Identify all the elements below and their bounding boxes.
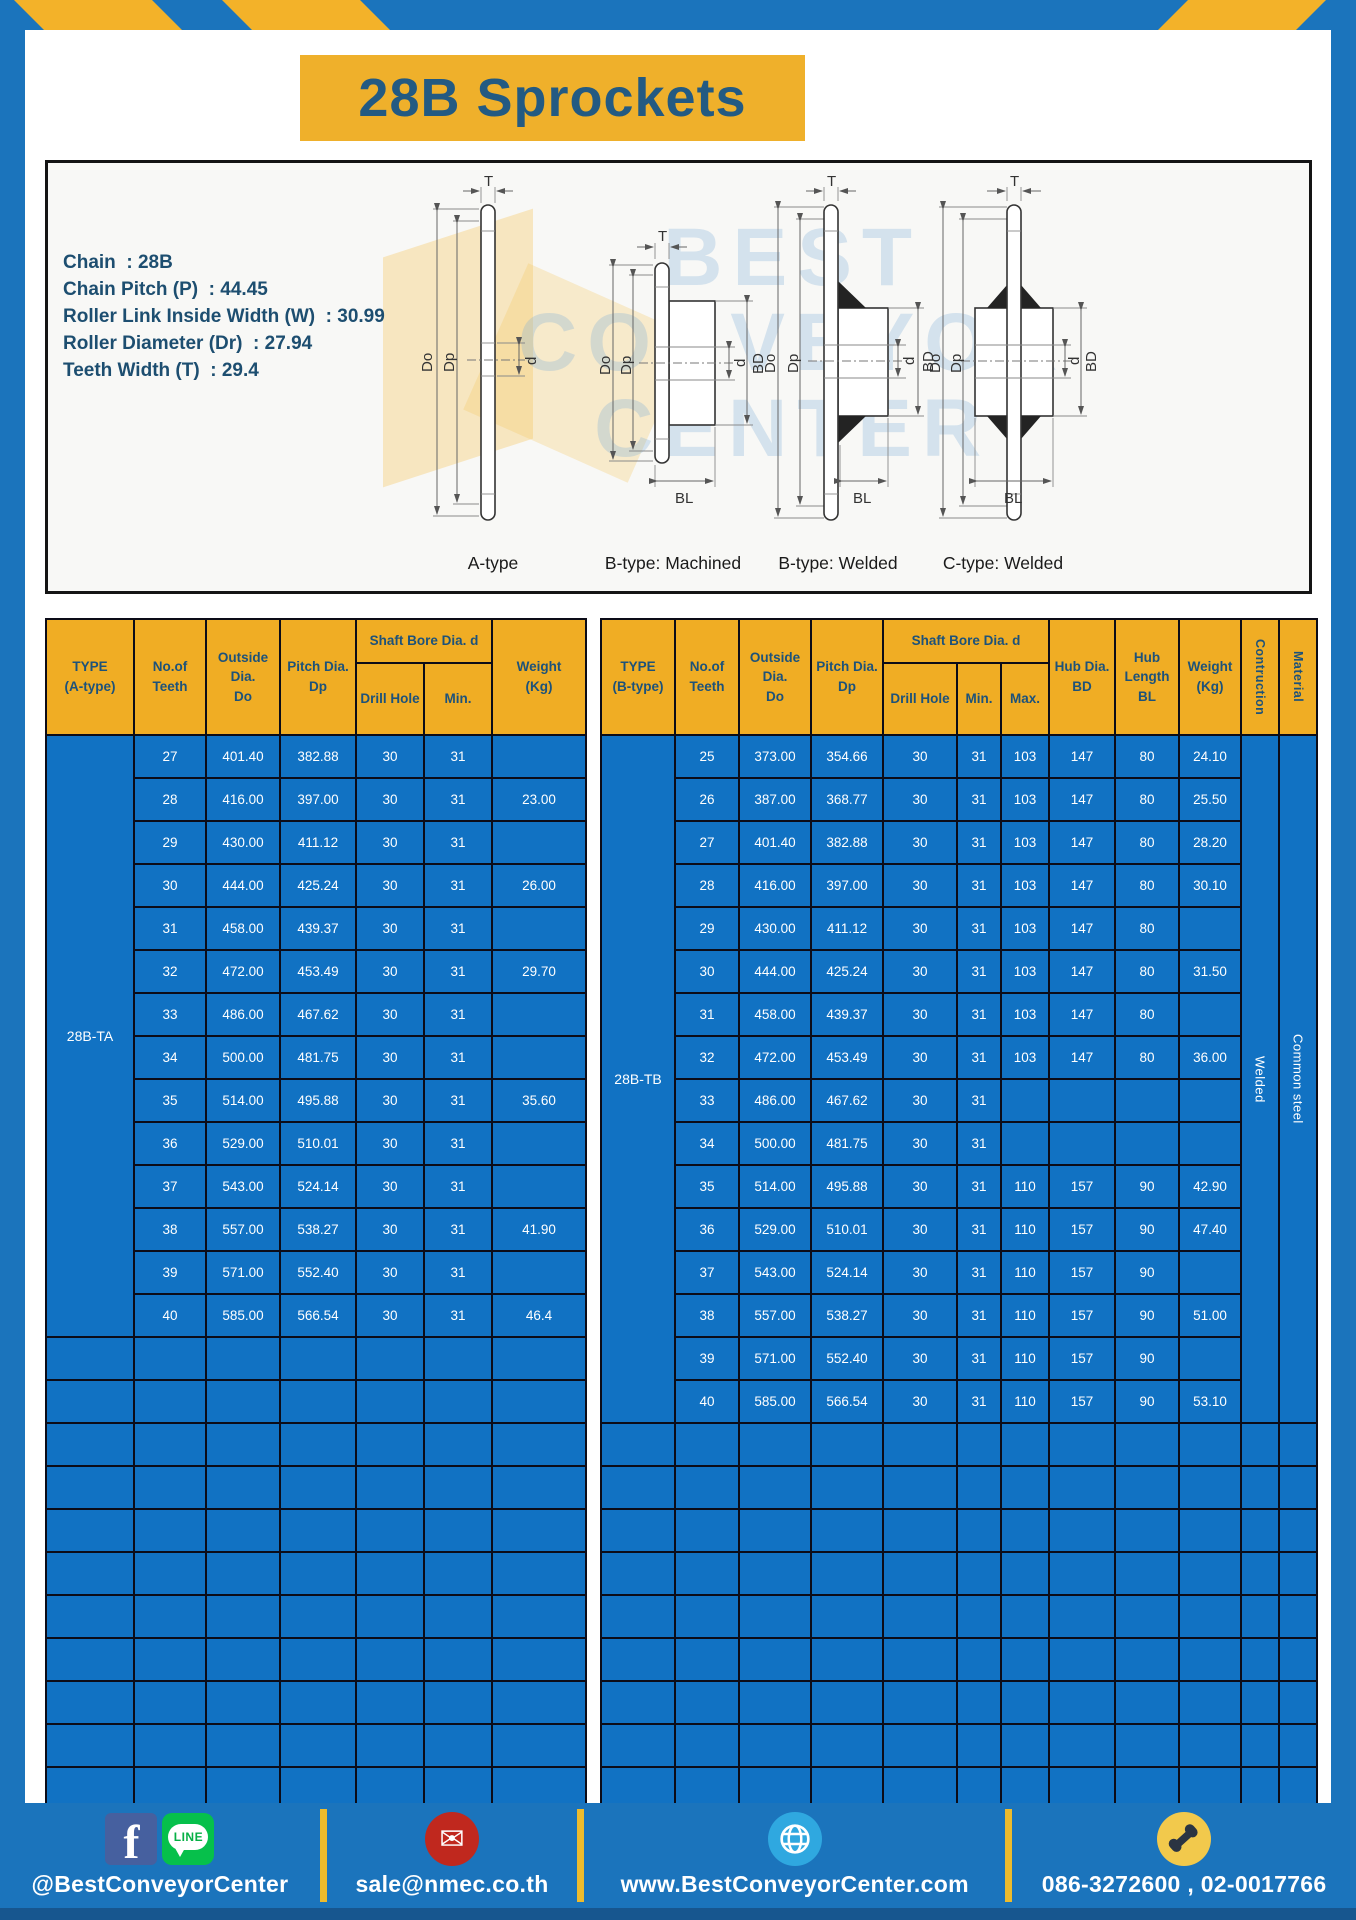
empty-cell — [1001, 1509, 1049, 1552]
empty-cell — [1049, 1509, 1115, 1552]
data-cell: 30 — [883, 907, 957, 950]
dim-label-d: d — [901, 357, 918, 365]
empty-cell — [957, 1509, 1001, 1552]
empty-cell — [206, 1552, 280, 1595]
empty-cell — [1279, 1638, 1317, 1681]
data-cell: 32 — [675, 1036, 739, 1079]
col-max: Max. — [1001, 663, 1049, 735]
empty-cell — [1179, 1724, 1241, 1767]
data-cell: 90 — [1115, 1380, 1179, 1423]
empty-row — [46, 1638, 586, 1681]
data-cell: 387.00 — [739, 778, 811, 821]
data-cell: 35 — [675, 1165, 739, 1208]
spec-roller-dia: Roller Diameter (Dr) : 27.94 — [63, 330, 385, 357]
data-cell: 38 — [134, 1208, 206, 1251]
empty-cell — [883, 1595, 957, 1638]
data-cell — [492, 907, 586, 950]
table-b-header: TYPE (B-type) No.of Teeth Outside Dia. D… — [601, 619, 1317, 735]
empty-cell — [1001, 1552, 1049, 1595]
empty-cell — [957, 1681, 1001, 1724]
caption-a-type: A-type — [408, 553, 578, 574]
phone-icon — [1157, 1812, 1211, 1866]
empty-cell — [280, 1337, 356, 1380]
col-drill-hole: Drill Hole — [883, 663, 957, 735]
data-cell: 566.54 — [811, 1380, 883, 1423]
data-cell: 543.00 — [206, 1165, 280, 1208]
content-sheet: 28B Sprockets BEST CONVEYOR CENTER Chain… — [25, 30, 1331, 1803]
empty-cell — [1001, 1423, 1049, 1466]
empty-row — [601, 1595, 1317, 1638]
data-cell: 40 — [134, 1294, 206, 1337]
empty-cell — [811, 1638, 883, 1681]
data-cell: 42.90 — [1179, 1165, 1241, 1208]
data-cell: 31 — [957, 1165, 1001, 1208]
data-cell: 110 — [1001, 1251, 1049, 1294]
data-cell: 80 — [1115, 735, 1179, 778]
data-cell: 514.00 — [206, 1079, 280, 1122]
dim-label-t: T — [658, 228, 667, 245]
data-cell: 110 — [1001, 1208, 1049, 1251]
data-cell: 557.00 — [739, 1294, 811, 1337]
empty-cell — [739, 1509, 811, 1552]
data-cell: 36.00 — [1179, 1036, 1241, 1079]
data-cell: 147 — [1049, 907, 1115, 950]
empty-cell — [424, 1595, 492, 1638]
data-cell: 30 — [356, 1036, 424, 1079]
empty-row — [46, 1380, 586, 1423]
col-min: Min. — [957, 663, 1001, 735]
empty-cell — [957, 1595, 1001, 1638]
footer-web-section: www.BestConveyorCenter.com — [584, 1803, 1005, 1908]
empty-cell — [492, 1724, 586, 1767]
empty-cell — [601, 1509, 675, 1552]
data-cell: 31 — [424, 821, 492, 864]
data-cell: 538.27 — [811, 1294, 883, 1337]
data-cell: 31 — [957, 907, 1001, 950]
data-cell — [1179, 993, 1241, 1036]
data-cell: 147 — [1049, 1036, 1115, 1079]
data-cell: 31 — [957, 950, 1001, 993]
empty-cell — [46, 1423, 134, 1466]
empty-cell — [601, 1638, 675, 1681]
data-cell: 510.01 — [280, 1122, 356, 1165]
data-cell: 31.50 — [1179, 950, 1241, 993]
footer-divider — [577, 1809, 584, 1902]
table-row: 27401.40382.8830311031478028.20 — [601, 821, 1317, 864]
diagram-panel: BEST CONVEYOR CENTER Chain : 28B Chain P… — [45, 160, 1312, 594]
empty-cell — [957, 1423, 1001, 1466]
data-cell: 31 — [957, 735, 1001, 778]
facebook-icon: f — [105, 1813, 157, 1865]
dim-label-dp: Dp — [618, 356, 635, 375]
data-cell: 36 — [675, 1208, 739, 1251]
empty-cell — [1179, 1595, 1241, 1638]
data-cell: 34 — [134, 1036, 206, 1079]
data-cell: 27 — [675, 821, 739, 864]
empty-cell — [739, 1466, 811, 1509]
empty-row — [601, 1681, 1317, 1724]
empty-cell — [883, 1724, 957, 1767]
data-cell: 30 — [883, 1380, 957, 1423]
data-cell: 453.49 — [811, 1036, 883, 1079]
data-cell: 458.00 — [206, 907, 280, 950]
empty-cell — [957, 1466, 1001, 1509]
data-cell: 373.00 — [739, 735, 811, 778]
data-cell: 416.00 — [206, 778, 280, 821]
col-hub-dia: Hub Dia. BD — [1049, 619, 1115, 735]
col-min: Min. — [424, 663, 492, 735]
data-cell: 80 — [1115, 907, 1179, 950]
data-cell: 38 — [675, 1294, 739, 1337]
data-cell: 90 — [1115, 1208, 1179, 1251]
empty-row — [46, 1681, 586, 1724]
type-cell: 28B-TA — [46, 735, 134, 1337]
data-cell: 31 — [675, 993, 739, 1036]
empty-cell — [811, 1595, 883, 1638]
data-cell: 30 — [883, 993, 957, 1036]
hazard-stripe — [10, 0, 188, 30]
data-cell — [1179, 1251, 1241, 1294]
empty-cell — [206, 1509, 280, 1552]
data-cell: 31 — [957, 778, 1001, 821]
data-cell: 147 — [1049, 993, 1115, 1036]
data-cell: 30 — [356, 1294, 424, 1337]
empty-cell — [1001, 1466, 1049, 1509]
empty-cell — [1049, 1466, 1115, 1509]
data-cell: 39 — [134, 1251, 206, 1294]
empty-cell — [1001, 1681, 1049, 1724]
data-cell: 458.00 — [739, 993, 811, 1036]
data-cell: 37 — [134, 1165, 206, 1208]
empty-cell — [957, 1724, 1001, 1767]
empty-cell — [280, 1509, 356, 1552]
data-cell: 495.88 — [811, 1165, 883, 1208]
empty-cell — [883, 1509, 957, 1552]
footer-social-section: f LINE @BestConveyorCenter — [0, 1803, 320, 1908]
data-cell: 40 — [675, 1380, 739, 1423]
empty-cell — [134, 1423, 206, 1466]
col-material: Material — [1279, 619, 1317, 735]
empty-cell — [356, 1509, 424, 1552]
table-row: 28B-TB25373.00354.6630311031478024.10Wel… — [601, 735, 1317, 778]
dim-label-t: T — [1010, 175, 1019, 190]
data-cell: 30 — [356, 993, 424, 1036]
dim-label-dp: Dp — [948, 354, 965, 373]
data-cell: 26.00 — [492, 864, 586, 907]
data-cell: 30 — [883, 1122, 957, 1165]
data-cell: 354.66 — [811, 735, 883, 778]
data-cell: 538.27 — [280, 1208, 356, 1251]
data-cell: 29 — [134, 821, 206, 864]
data-cell: 30 — [356, 950, 424, 993]
empty-cell — [811, 1509, 883, 1552]
data-cell: 103 — [1001, 993, 1049, 1036]
data-cell — [492, 821, 586, 864]
table-row: 28B-TA27401.40382.883031 — [46, 735, 586, 778]
empty-cell — [739, 1552, 811, 1595]
data-cell: 31 — [424, 950, 492, 993]
empty-cell — [424, 1552, 492, 1595]
empty-cell — [206, 1638, 280, 1681]
data-cell: 37 — [675, 1251, 739, 1294]
col-weight: Weight (Kg) — [492, 619, 586, 735]
data-cell: 486.00 — [206, 993, 280, 1036]
empty-cell — [280, 1380, 356, 1423]
data-cell: 23.00 — [492, 778, 586, 821]
data-cell — [492, 993, 586, 1036]
table-row: 30444.00425.2430311031478031.50 — [601, 950, 1317, 993]
data-cell: 103 — [1001, 778, 1049, 821]
data-cell: 30 — [356, 735, 424, 778]
spec-chain: Chain : 28B — [63, 249, 385, 276]
empty-cell — [601, 1423, 675, 1466]
data-cell: 157 — [1049, 1337, 1115, 1380]
dim-label-dp: Dp — [441, 353, 458, 372]
data-cell: 157 — [1049, 1165, 1115, 1208]
table-row: 39571.00552.40303111015790 — [601, 1337, 1317, 1380]
spec-teeth-width: Teeth Width (T) : 29.4 — [63, 357, 385, 384]
data-cell: 31 — [424, 735, 492, 778]
data-cell: 31 — [957, 1122, 1001, 1165]
empty-cell — [883, 1423, 957, 1466]
email-address: sale@nmec.co.th — [355, 1871, 548, 1898]
construction-cell: Welded — [1241, 735, 1279, 1423]
table-row: 28416.00397.0030311031478030.10 — [601, 864, 1317, 907]
line-icon: LINE — [162, 1813, 214, 1865]
empty-row — [46, 1595, 586, 1638]
empty-cell — [46, 1509, 134, 1552]
empty-cell — [811, 1681, 883, 1724]
data-cell: 28 — [675, 864, 739, 907]
dim-label-d: d — [732, 359, 749, 367]
envelope-glyph: ✉ — [439, 1822, 464, 1857]
data-cell: 30 — [134, 864, 206, 907]
data-cell: 571.00 — [206, 1251, 280, 1294]
empty-cell — [1049, 1552, 1115, 1595]
data-cell: 430.00 — [739, 907, 811, 950]
data-cell: 80 — [1115, 821, 1179, 864]
bottom-strip — [0, 1908, 1356, 1920]
table-row: 34500.00481.753031 — [601, 1122, 1317, 1165]
data-cell: 30 — [356, 1251, 424, 1294]
empty-cell — [134, 1724, 206, 1767]
data-cell: 51.00 — [1179, 1294, 1241, 1337]
empty-cell — [1115, 1509, 1179, 1552]
data-cell: 90 — [1115, 1251, 1179, 1294]
empty-cell — [46, 1552, 134, 1595]
empty-cell — [424, 1724, 492, 1767]
table-row: 36529.00510.0130311101579047.40 — [601, 1208, 1317, 1251]
empty-cell — [1049, 1638, 1115, 1681]
data-cell: 510.01 — [811, 1208, 883, 1251]
data-cell — [1115, 1122, 1179, 1165]
empty-cell — [1279, 1423, 1317, 1466]
data-cell: 30 — [883, 821, 957, 864]
data-cell: 557.00 — [206, 1208, 280, 1251]
phone-numbers: 086-3272600 , 02-0017766 — [1042, 1871, 1327, 1898]
table-row: 35514.00495.8830311101579042.90 — [601, 1165, 1317, 1208]
data-cell: 110 — [1001, 1165, 1049, 1208]
data-cell: 31 — [424, 1165, 492, 1208]
empty-cell — [492, 1509, 586, 1552]
empty-cell — [675, 1724, 739, 1767]
empty-cell — [206, 1681, 280, 1724]
material-cell: Common steel — [1279, 735, 1317, 1423]
empty-cell — [424, 1337, 492, 1380]
data-cell: 411.12 — [811, 907, 883, 950]
line-bubble: LINE — [168, 1824, 208, 1850]
data-cell: 103 — [1001, 821, 1049, 864]
empty-cell — [1115, 1423, 1179, 1466]
dim-label-bl: BL — [853, 490, 871, 507]
empty-cell — [206, 1724, 280, 1767]
empty-cell — [601, 1552, 675, 1595]
data-cell: 30 — [883, 1251, 957, 1294]
data-cell: 397.00 — [280, 778, 356, 821]
data-cell: 585.00 — [739, 1380, 811, 1423]
empty-cell — [206, 1466, 280, 1509]
social-handle: @BestConveyorCenter — [31, 1871, 288, 1898]
dim-label-do: Do — [927, 354, 944, 373]
data-cell: 31 — [957, 1036, 1001, 1079]
data-cell — [492, 1122, 586, 1165]
empty-cell — [1241, 1595, 1279, 1638]
empty-cell — [675, 1595, 739, 1638]
empty-cell — [492, 1337, 586, 1380]
empty-row — [601, 1509, 1317, 1552]
empty-cell — [492, 1595, 586, 1638]
data-cell: 30 — [883, 735, 957, 778]
empty-cell — [739, 1638, 811, 1681]
data-cell: 30 — [356, 821, 424, 864]
footer-email-section: ✉ sale@nmec.co.th — [327, 1803, 577, 1908]
empty-cell — [356, 1681, 424, 1724]
empty-cell — [46, 1681, 134, 1724]
empty-cell — [601, 1595, 675, 1638]
data-cell: 157 — [1049, 1380, 1115, 1423]
empty-cell — [1049, 1423, 1115, 1466]
hazard-bar — [0, 0, 1356, 30]
empty-cell — [1241, 1466, 1279, 1509]
empty-cell — [280, 1681, 356, 1724]
footer-phone-section: 086-3272600 , 02-0017766 — [1012, 1803, 1356, 1908]
data-cell — [492, 735, 586, 778]
empty-cell — [46, 1638, 134, 1681]
data-cell — [492, 1036, 586, 1079]
col-shaft-bore: Shaft Bore Dia. d — [883, 619, 1049, 663]
data-cell: 28.20 — [1179, 821, 1241, 864]
data-cell: 31 — [957, 1337, 1001, 1380]
empty-cell — [601, 1681, 675, 1724]
empty-row — [46, 1423, 586, 1466]
data-cell: 30 — [883, 1208, 957, 1251]
col-pitch-dia: Pitch Dia. Dp — [280, 619, 356, 735]
empty-cell — [1115, 1595, 1179, 1638]
data-cell: 444.00 — [739, 950, 811, 993]
hazard-stripe — [218, 0, 396, 30]
empty-cell — [424, 1681, 492, 1724]
empty-cell — [134, 1552, 206, 1595]
empty-cell — [675, 1466, 739, 1509]
data-cell: 31 — [424, 778, 492, 821]
empty-cell — [1115, 1724, 1179, 1767]
hazard-stripe — [1152, 0, 1330, 30]
dim-label-do: Do — [762, 354, 779, 373]
dim-label-bl: BL — [675, 490, 693, 507]
empty-cell — [739, 1681, 811, 1724]
table-row: 37543.00524.14303111015790 — [601, 1251, 1317, 1294]
data-cell: 382.88 — [811, 821, 883, 864]
data-cell: 439.37 — [280, 907, 356, 950]
data-cell: 80 — [1115, 993, 1179, 1036]
empty-cell — [883, 1681, 957, 1724]
empty-cell — [1179, 1509, 1241, 1552]
empty-row — [601, 1466, 1317, 1509]
empty-cell — [1279, 1595, 1317, 1638]
data-cell — [1001, 1079, 1049, 1122]
data-cell: 416.00 — [739, 864, 811, 907]
empty-cell — [675, 1509, 739, 1552]
data-cell: 481.75 — [811, 1122, 883, 1165]
col-shaft-bore: Shaft Bore Dia. d — [356, 619, 492, 663]
empty-cell — [492, 1466, 586, 1509]
empty-cell — [280, 1466, 356, 1509]
data-cell: 439.37 — [811, 993, 883, 1036]
data-cell: 31 — [134, 907, 206, 950]
data-cell — [1179, 1122, 1241, 1165]
empty-cell — [1241, 1638, 1279, 1681]
footer: f LINE @BestConveyorCenter ✉ sale@nmec.c… — [0, 1803, 1356, 1908]
col-type: TYPE (A-type) — [46, 619, 134, 735]
data-cell: 481.75 — [280, 1036, 356, 1079]
empty-cell — [675, 1681, 739, 1724]
spec-roller-width: Roller Link Inside Width (W) : 30.99 — [63, 303, 385, 330]
data-cell: 495.88 — [280, 1079, 356, 1122]
data-cell: 472.00 — [206, 950, 280, 993]
data-cell: 31 — [957, 993, 1001, 1036]
empty-cell — [424, 1423, 492, 1466]
data-cell: 430.00 — [206, 821, 280, 864]
data-cell: 33 — [134, 993, 206, 1036]
empty-cell — [1115, 1552, 1179, 1595]
empty-cell — [675, 1638, 739, 1681]
data-cell: 552.40 — [811, 1337, 883, 1380]
empty-cell — [811, 1466, 883, 1509]
footer-divider — [320, 1809, 327, 1902]
data-cell: 80 — [1115, 864, 1179, 907]
spec-pitch: Chain Pitch (P) : 44.45 — [63, 276, 385, 303]
empty-cell — [46, 1337, 134, 1380]
dim-label-d: d — [523, 357, 540, 365]
catalog-page: 28B Sprockets BEST CONVEYOR CENTER Chain… — [0, 0, 1356, 1920]
data-cell: 472.00 — [739, 1036, 811, 1079]
empty-row — [601, 1724, 1317, 1767]
empty-cell — [957, 1552, 1001, 1595]
empty-cell — [356, 1724, 424, 1767]
dim-label-bl: BL — [1004, 490, 1022, 507]
dim-label-dp: Dp — [785, 354, 802, 373]
social-icons: f LINE — [105, 1811, 214, 1867]
empty-cell — [1179, 1466, 1241, 1509]
empty-cell — [1001, 1724, 1049, 1767]
data-cell: 31 — [957, 1208, 1001, 1251]
empty-cell — [134, 1466, 206, 1509]
b-type-machined-drawing: T Do Dp d BD BL — [593, 175, 763, 550]
data-cell: 35 — [134, 1079, 206, 1122]
data-cell: 90 — [1115, 1337, 1179, 1380]
b-type-welded-drawing: T Do Dp d BD BL — [758, 175, 933, 550]
col-type: TYPE (B-type) — [601, 619, 675, 735]
